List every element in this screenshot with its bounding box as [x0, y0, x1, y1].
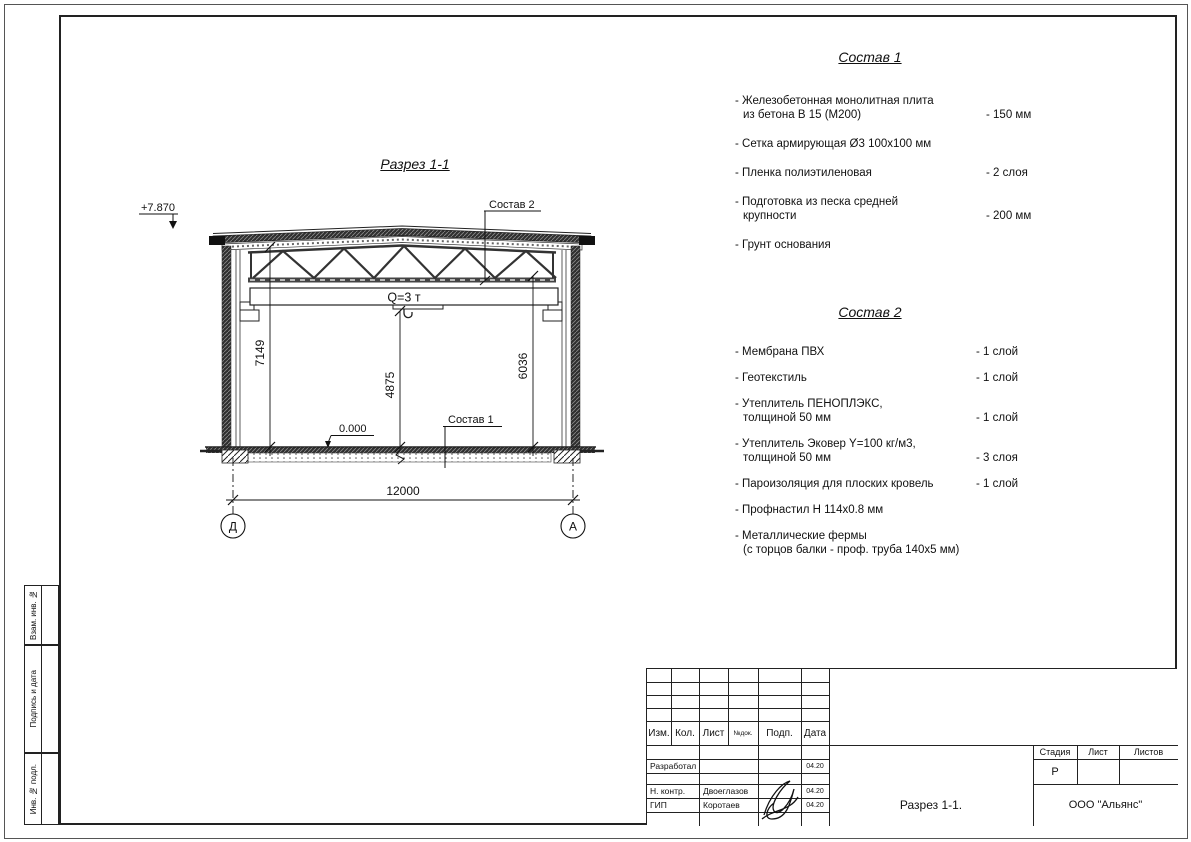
elevation-mark-text: +7.870 [141, 202, 175, 214]
axis-markers: Д А [221, 514, 585, 538]
margin-box-vzam: Взам. инв. № [24, 585, 59, 645]
stamp-role-ncontrol: Н. контр. [647, 784, 702, 798]
sostav2-list: Состав 2 - Мембрана ПВХ - 1 слой - Геоте… [735, 305, 1183, 557]
list-item: - Пароизоляция для плоских кровель - 1 с… [735, 477, 1183, 491]
foundation-right [554, 450, 580, 463]
list-item: - Утеплитель Эковер Y=100 кг/м3, толщино… [735, 437, 1183, 465]
margin-label: Взам. инв. № [25, 586, 42, 644]
item-name: - Пароизоляция для плоских кровель [735, 477, 976, 491]
stamp-stage-label: Стадия [1033, 745, 1077, 759]
list-item: - Металлические фермы (с торцов балки - … [735, 529, 1183, 557]
item-name: - Утеплитель Эковер Y=100 кг/м3, толщино… [735, 437, 976, 465]
sostav2-title: Состав 2 [775, 305, 965, 319]
stamp-role-developer: Разработал [647, 759, 702, 773]
dim-12000-text: 12000 [386, 484, 420, 498]
item-name: - Металлические фермы (с торцов балки - … [735, 529, 976, 557]
stamp-stage-value: Р [1033, 759, 1077, 784]
item-value: - 1 слой [976, 411, 1018, 425]
dim-7149-text: 7149 [253, 339, 267, 366]
wall-right [571, 246, 580, 451]
stamp-col-data: Дата [801, 721, 829, 745]
list-item: - Профнастил Н 114х0.8 мм [735, 503, 1183, 517]
section-title: Разрез 1-1 [350, 156, 480, 172]
item-value: - 1 слой [976, 371, 1018, 385]
item-value: - 150 мм [986, 108, 1031, 122]
sostav1-title: Состав 1 [775, 50, 965, 64]
stamp-sheet-label: Лист [1077, 745, 1119, 759]
list-item: - Пленка полиэтиленовая - 2 слоя [735, 166, 1183, 180]
list-item: - Утеплитель ПЕНОПЛЭКС, толщиной 50 мм -… [735, 397, 1183, 425]
stamp-col-ndok: №док. [728, 721, 758, 745]
crane-hook [404, 309, 412, 318]
item-name: - Утеплитель ПЕНОПЛЭКС, толщиной 50 мм [735, 397, 976, 425]
item-name: - Геотекстиль [735, 371, 976, 385]
item-name: - Пленка полиэтиленовая [735, 166, 986, 180]
roof-end-cap-left [209, 236, 225, 245]
list-item: - Железобетонная монолитная плита из бет… [735, 94, 1183, 122]
roof-end-cap-right [579, 236, 595, 245]
callout-sostav1-text: Состав 1 [448, 414, 494, 426]
item-value: - 3 слоя [976, 451, 1018, 465]
sostav1-list: Состав 1 - Железобетонная монолитная пли… [735, 50, 1183, 252]
stamp-name-gip: Коротаев [700, 798, 761, 812]
elevation-mark: +7.870 [139, 202, 178, 229]
stamp-date-ncontrol: 04.20 [801, 784, 829, 798]
item-name: - Профнастил Н 114х0.8 мм [735, 503, 976, 517]
list-item: - Сетка армирующая Ø3 100х100 мм [735, 137, 1183, 151]
item-value: - 1 слой [976, 345, 1018, 359]
item-name: - Мембрана ПВХ [735, 345, 976, 359]
crane-beam: Q=3 т [250, 288, 558, 318]
stamp-date-gip: 04.20 [801, 798, 829, 812]
signature-scribble [760, 775, 800, 823]
level-mark-text: 0.000 [339, 423, 367, 435]
level-mark: 0.000 [325, 423, 374, 448]
title-block: Изм. Кол. Лист №док. Подп. Дата Разработ… [646, 668, 1177, 825]
item-name: - Железобетонная монолитная плита из бет… [735, 94, 986, 122]
margin-label: Подпись и дата [25, 646, 42, 752]
stamp-col-kol: Кол. [671, 721, 699, 745]
stamp-role-gip: ГИП [647, 798, 702, 812]
stamp-col-podp: Подп. [758, 721, 801, 745]
item-name: - Грунт основания [735, 238, 986, 252]
foundation-left [222, 450, 248, 463]
axis-right-text: А [569, 520, 577, 534]
walls [222, 246, 580, 451]
margin-box-podpis: Подпись и дата [24, 645, 59, 753]
dimension-12000: 12000 [226, 458, 580, 514]
drawing-sheet: Разрез 1-1 +7.870 [0, 0, 1191, 842]
dim-4875-text: 4875 [383, 371, 397, 398]
list-item: - Мембрана ПВХ - 1 слой [735, 345, 1183, 359]
stamp-col-list: Лист [699, 721, 728, 745]
list-item: - Геотекстиль - 1 слой [735, 371, 1183, 385]
list-item: - Грунт основания [735, 238, 1183, 252]
item-value: - 200 мм [986, 209, 1031, 223]
axis-left-text: Д [229, 520, 237, 534]
stamp-company: ООО "Альянс" [1033, 784, 1178, 826]
item-value: - 2 слоя [986, 166, 1028, 180]
margin-label: Инв. № подл. [25, 754, 42, 824]
stamp-sheets-label: Листов [1119, 745, 1178, 759]
crane-capacity-label: Q=3 т [387, 291, 420, 305]
stamp-date-developer: 04.20 [801, 759, 829, 773]
item-name: - Подготовка из песка средней крупности [735, 195, 986, 223]
callout-sostav2-text: Состав 2 [489, 199, 535, 211]
section-drawing: +7.870 [130, 195, 610, 545]
crane-trolley [393, 305, 443, 309]
margin-box-inv: Инв. № подл. [24, 753, 59, 825]
wall-left [222, 246, 231, 451]
dimension-4875: 4875 [383, 306, 405, 464]
stamp-name-ncontrol: Двоеглазов [700, 784, 761, 798]
dim-6036-text: 6036 [516, 352, 530, 379]
list-item: - Подготовка из песка средней крупности … [735, 195, 1183, 223]
stamp-col-izm: Изм. [647, 721, 671, 745]
stamp-doc-title: Разрез 1-1. [829, 784, 1033, 826]
item-value: - 1 слой [976, 477, 1018, 491]
roof-truss [248, 246, 556, 281]
item-name: - Сетка армирующая Ø3 100х100 мм [735, 137, 986, 151]
